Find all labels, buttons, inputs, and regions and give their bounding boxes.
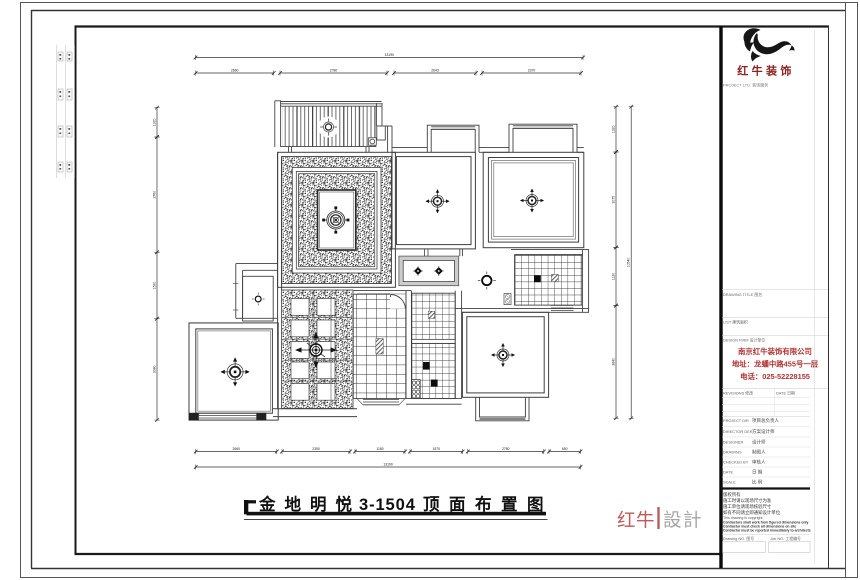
svg-text:施工单位请现场核验尺寸: 施工单位请现场核验尺寸	[723, 503, 772, 510]
svg-text:金地明悦: 金地明悦	[258, 494, 361, 514]
svg-text:PROJECT LTD. 装饰服务: PROJECT LTD. 装饰服务	[723, 82, 768, 88]
svg-text:3640: 3640	[611, 358, 615, 366]
svg-text:2760: 2760	[152, 191, 156, 199]
svg-text:2643: 2643	[431, 69, 439, 73]
svg-text:电话：025-52228155: 电话：025-52228155	[740, 372, 810, 381]
svg-text:CHECKED BY: CHECKED BY	[723, 460, 749, 465]
svg-text:2660: 2660	[231, 69, 239, 73]
svg-text:南京红牛装饰有限公司: 南京红牛装饰有限公司	[738, 347, 812, 356]
svg-text:DIRECTOR DER: DIRECTOR DER	[723, 429, 753, 434]
svg-text:顶面布置图: 顶面布置图	[423, 494, 553, 514]
svg-text:红牛: 红牛	[617, 510, 655, 531]
svg-text:3080: 3080	[152, 366, 156, 374]
svg-text:2370: 2370	[528, 69, 536, 73]
svg-text:施工时请以现场尺寸为准: 施工时请以现场尺寸为准	[723, 497, 772, 504]
svg-text:13190: 13190	[383, 463, 393, 467]
svg-text:2350: 2350	[312, 447, 320, 451]
svg-text:1180: 1180	[376, 447, 383, 451]
svg-text:PROJECT DIR: PROJECT DIR	[723, 418, 749, 423]
svg-text:3075: 3075	[611, 196, 615, 204]
svg-text:1570: 1570	[433, 447, 441, 451]
svg-text:制图人: 制图人	[752, 449, 766, 456]
svg-text:设计师: 设计师	[752, 439, 766, 446]
svg-text:This drawing is copyright: This drawing is copyright	[723, 516, 763, 520]
svg-text:13190: 13190	[385, 53, 395, 57]
svg-text:SCALE: SCALE	[723, 480, 736, 485]
svg-text:1130: 1130	[611, 273, 615, 280]
svg-text:1520: 1520	[152, 282, 156, 290]
svg-text:比 例: 比 例	[752, 479, 763, 486]
svg-text:2780: 2780	[330, 69, 338, 73]
svg-text:1320: 1320	[152, 118, 156, 126]
svg-text:红牛装饰: 红牛装饰	[737, 64, 795, 78]
svg-text:設計: 設計	[663, 510, 703, 531]
svg-text:Job NO. 工程编号: Job NO. 工程编号	[770, 536, 801, 541]
svg-text:方案设计师: 方案设计师	[752, 428, 775, 435]
svg-text:650: 650	[562, 447, 568, 451]
svg-text:如有不同请立即通知设计单位: 如有不同请立即通知设计单位	[723, 509, 781, 516]
svg-text:DATE: DATE	[723, 470, 733, 475]
svg-text:版权所有: 版权所有	[723, 491, 741, 498]
svg-text:10540: 10540	[627, 258, 631, 268]
svg-text:DATE 日期: DATE 日期	[776, 391, 795, 396]
svg-text:地址：龙蟠中路455号一层: 地址：龙蟠中路455号一层	[732, 360, 819, 369]
svg-text:2660: 2660	[232, 447, 240, 451]
svg-text:3-1504: 3-1504	[359, 496, 416, 514]
svg-text:Contractor must be reported im: Contractor must be reported immediately …	[723, 529, 811, 533]
svg-text:项目总负责人: 项目总负责人	[752, 417, 779, 424]
svg-text:Drawing NO. 图号: Drawing NO. 图号	[723, 536, 754, 541]
svg-text:2780: 2780	[502, 447, 510, 451]
svg-text:1320: 1320	[611, 125, 615, 133]
svg-text:REVISIONS 修改: REVISIONS 修改	[723, 391, 753, 396]
svg-text:DESIGN FIRM 设计单位: DESIGN FIRM 设计单位	[723, 338, 765, 343]
svg-text:DRAWING: DRAWING	[723, 450, 742, 455]
svg-text:DRAWING TITLE 图名: DRAWING TITLE 图名	[723, 292, 762, 297]
svg-text:审核人: 审核人	[752, 459, 766, 466]
svg-text:DESIGNER: DESIGNER	[723, 440, 744, 445]
svg-text:LIST 建筑面积: LIST 建筑面积	[723, 320, 748, 325]
